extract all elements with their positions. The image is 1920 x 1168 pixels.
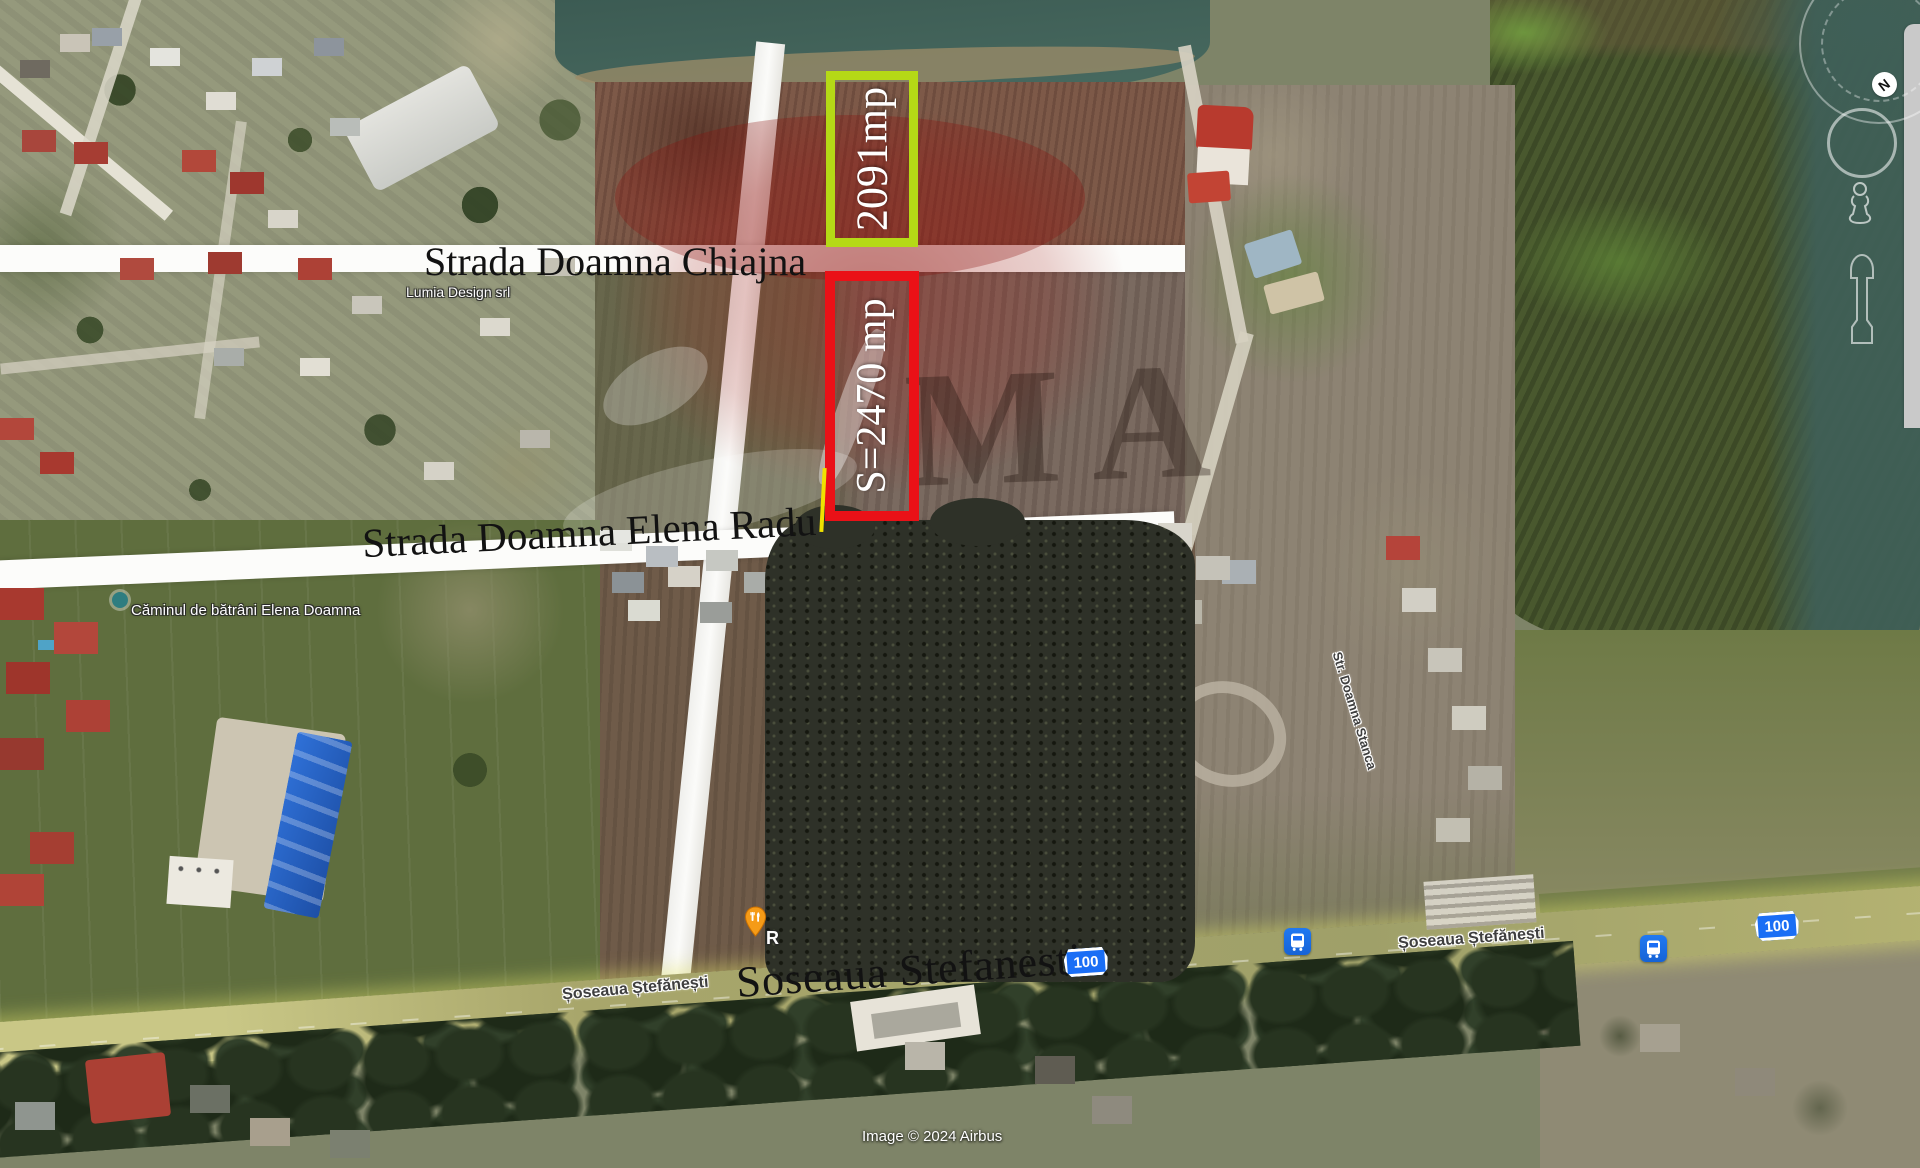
poi-label-lumia-design[interactable]: Lumia Design srl xyxy=(406,284,510,300)
route-shield-100-right: 100 xyxy=(1754,910,1800,941)
street-label-chiajna: Strada Doamna Chiajna xyxy=(424,238,806,285)
scrubland-dark-texture xyxy=(765,520,1195,982)
route-shield-100-left: 100 xyxy=(1063,946,1109,977)
plot-area-label-green: 2091mp xyxy=(847,87,898,231)
terrain-dirt-southeast-corner xyxy=(1540,940,1920,1168)
scrubland-bump xyxy=(930,498,1025,546)
plot-area-label-red: S=2470 mp xyxy=(848,298,896,493)
building-roof xyxy=(1196,105,1254,152)
bus-stop-icon[interactable] xyxy=(1284,928,1311,955)
restaurant-pin-icon[interactable] xyxy=(744,906,767,943)
house-cluster-south xyxy=(0,0,40,28)
route-number: 100 xyxy=(1073,953,1099,972)
swimming-pool xyxy=(38,640,54,650)
satellite-map-canvas[interactable]: MA 2091mp S=2470 mp Strada Doamna Chiajn… xyxy=(0,0,1920,1168)
poi-label-nursing-home[interactable]: Căminul de bătrâni Elena Doamna xyxy=(131,602,360,619)
building-red-roof-small xyxy=(1187,171,1231,204)
pegman-icon[interactable] xyxy=(1843,180,1877,241)
zoom-control-outline[interactable] xyxy=(1846,238,1878,365)
building-under-construction xyxy=(1423,874,1536,930)
look-joystick-ring[interactable] xyxy=(1827,108,1897,178)
poi-dot-nursing-home[interactable] xyxy=(112,592,128,608)
plot-outline-green: 2091mp xyxy=(826,71,918,247)
bus-stop-icon[interactable] xyxy=(1640,935,1667,962)
poi-label-restaurant-partial[interactable]: R xyxy=(766,928,779,949)
imagery-attribution: Image © 2024 Airbus xyxy=(862,1128,1002,1145)
route-number: 100 xyxy=(1764,917,1790,936)
building-white-office xyxy=(166,856,233,908)
compass-north-button[interactable]: N xyxy=(1872,72,1897,97)
plot-outline-red: S=2470 mp xyxy=(825,271,919,521)
compass-north-label: N xyxy=(1876,75,1894,94)
building-red-roof-southwest xyxy=(85,1052,171,1124)
